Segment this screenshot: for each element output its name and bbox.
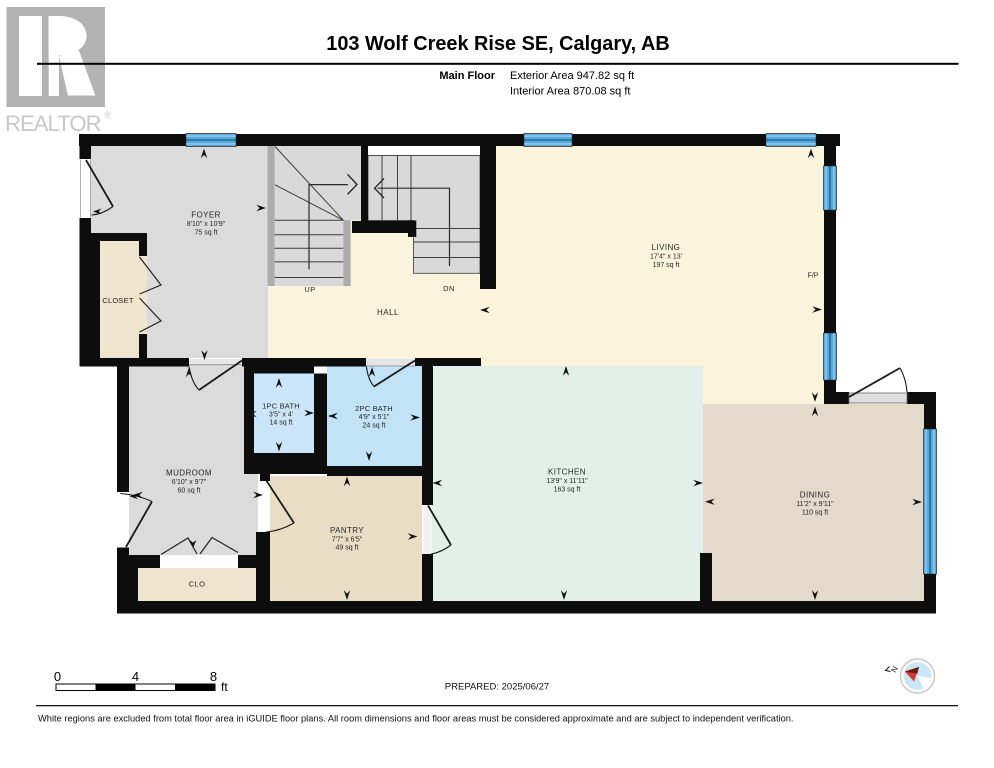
svg-text:11'2" x 9'11": 11'2" x 9'11" — [796, 501, 834, 508]
svg-text:FOYER: FOYER — [191, 211, 221, 220]
svg-text:13'9" x 11'11": 13'9" x 11'11" — [546, 478, 588, 485]
svg-text:Exterior Area 947.82 sq ft: Exterior Area 947.82 sq ft — [510, 70, 634, 82]
svg-text:UP: UP — [304, 285, 315, 294]
svg-text:14 sq ft: 14 sq ft — [270, 420, 293, 427]
svg-text:49 sq ft: 49 sq ft — [336, 545, 359, 552]
svg-text:HALL: HALL — [377, 308, 399, 317]
svg-text:4'9" x 5'1": 4'9" x 5'1" — [359, 414, 390, 421]
svg-text:24 sq ft: 24 sq ft — [363, 422, 386, 429]
svg-text:6'10" x 9'7": 6'10" x 9'7" — [172, 479, 207, 486]
svg-text:®: ® — [105, 110, 112, 120]
svg-text:REALTOR: REALTOR — [5, 111, 101, 136]
svg-text:60 sq ft: 60 sq ft — [178, 487, 201, 494]
svg-text:LIVING: LIVING — [652, 243, 681, 252]
svg-text:3'5" x 4': 3'5" x 4' — [269, 412, 293, 419]
svg-text:4: 4 — [132, 669, 139, 684]
svg-text:MUDROOM: MUDROOM — [166, 469, 212, 478]
svg-text:8'10" x 10'9": 8'10" x 10'9" — [187, 221, 226, 228]
svg-text:Interior Area 870.08 sq ft: Interior Area 870.08 sq ft — [510, 86, 630, 98]
svg-text:8: 8 — [210, 669, 217, 684]
svg-text:103 Wolf Creek Rise SE, Calgar: 103 Wolf Creek Rise SE, Calgary, AB — [326, 33, 669, 55]
svg-text:PREPARED: 2025/06/27: PREPARED: 2025/06/27 — [445, 682, 549, 693]
svg-text:Main Floor: Main Floor — [439, 70, 495, 82]
svg-text:0: 0 — [54, 669, 61, 684]
svg-text:17'4" x 13': 17'4" x 13' — [650, 254, 682, 261]
svg-text:DN: DN — [443, 284, 455, 293]
svg-text:7'7" x 6'5": 7'7" x 6'5" — [332, 536, 363, 543]
svg-text:PANTRY: PANTRY — [330, 526, 364, 535]
svg-text:CLO: CLO — [189, 580, 206, 589]
svg-text:N: N — [889, 665, 900, 675]
svg-text:KITCHEN: KITCHEN — [548, 468, 586, 477]
svg-text:ft: ft — [221, 680, 228, 694]
svg-text:White regions are excluded fro: White regions are excluded from total fl… — [38, 714, 794, 724]
svg-text:197 sq ft: 197 sq ft — [653, 262, 680, 269]
svg-text:75 sq ft: 75 sq ft — [195, 229, 218, 236]
svg-text:163 sq ft: 163 sq ft — [554, 487, 581, 494]
svg-text:1PC BATH: 1PC BATH — [262, 402, 300, 411]
svg-text:2PC BATH: 2PC BATH — [355, 404, 393, 413]
svg-text:CLOSET: CLOSET — [102, 296, 133, 305]
svg-text:F/P: F/P — [808, 273, 819, 280]
svg-text:DINING: DINING — [800, 491, 830, 500]
svg-text:110 sq ft: 110 sq ft — [802, 510, 828, 517]
